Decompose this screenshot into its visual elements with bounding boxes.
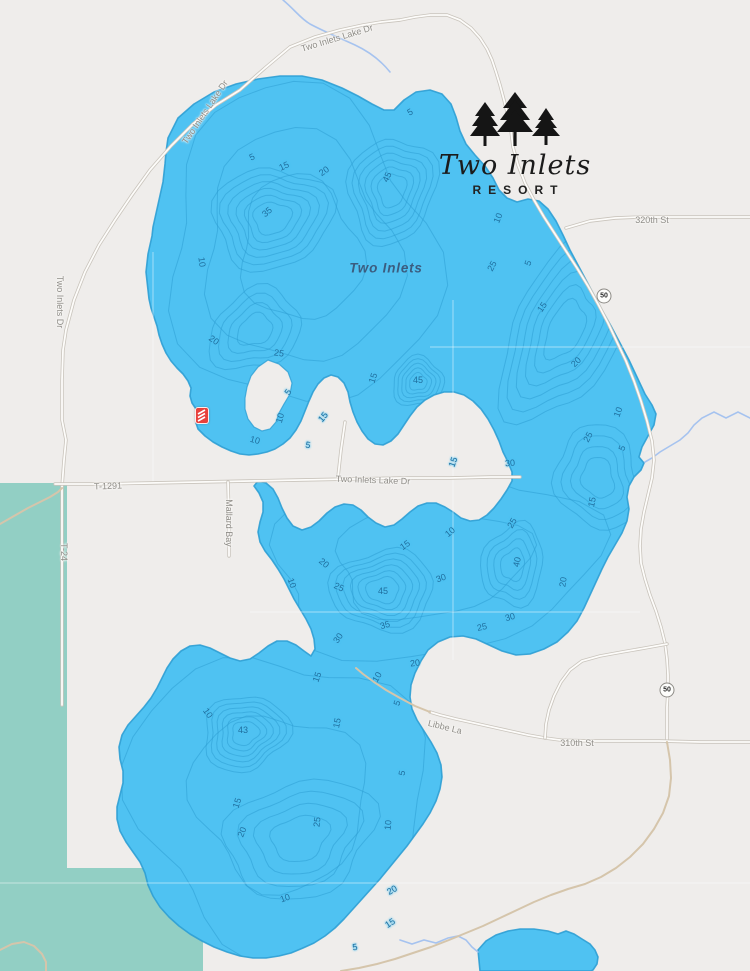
depth-value: 30 (505, 458, 516, 469)
road-label-text: Two Inlets Dr (55, 276, 65, 329)
depth-contour-label: 25 (476, 621, 488, 633)
road-label-text: 320th St (635, 215, 669, 225)
road-label: T-1291 (94, 481, 122, 492)
road-label: 310th St (560, 738, 594, 748)
road-label: 320th St (635, 215, 669, 225)
marker-glyph-icon (196, 408, 208, 423)
depth-value: 10 (196, 256, 207, 267)
road-label-text: 310th St (560, 738, 594, 748)
depth-value: 25 (273, 347, 284, 358)
depth-contour-label: 20 (409, 657, 420, 668)
depth-contour-label: 40 (511, 556, 523, 568)
highway-shield-50: 50 (660, 683, 675, 698)
depth-value: 25 (476, 621, 488, 633)
depth-contour-label: 10 (383, 820, 394, 831)
road-label: Two Inlets Dr (55, 276, 65, 329)
depth-value: 25 (312, 817, 323, 828)
depth-contour-label: 45 (378, 586, 388, 596)
depth-contour-label: 15 (586, 496, 598, 508)
highway-number: 50 (600, 293, 608, 300)
depth-contour-label: 43 (238, 725, 248, 735)
depth-contour-label: 30 (505, 458, 516, 469)
resort-map-marker[interactable] (195, 407, 209, 424)
road-label: T-24 (59, 543, 69, 561)
highway-number: 50 (663, 687, 671, 694)
highway-shield-50: 50 (597, 289, 612, 304)
depth-value: 10 (383, 820, 394, 831)
map-canvas: Two Inlets Two Inlets RESORT Two Inlets … (0, 0, 750, 971)
depth-value: 40 (511, 556, 523, 568)
depth-contour-label: 15 (331, 717, 343, 729)
lake-name-label: Two Inlets (349, 261, 423, 276)
road-label: Mallard Bay (224, 499, 234, 547)
road-label-text: T-24 (59, 543, 69, 561)
depth-contour-label: 10 (196, 256, 207, 267)
road-label-text: Mallard Bay (224, 499, 234, 547)
depth-contour-label: 45 (413, 375, 423, 385)
depth-value: 45 (378, 586, 388, 596)
resort-logo: Two Inlets RESORT (420, 92, 610, 197)
depth-value: 20 (409, 657, 420, 668)
depth-value: 15 (586, 496, 598, 508)
depth-value: 43 (238, 725, 248, 735)
logo-resort-text: RESORT (427, 183, 610, 197)
depth-value: 15 (331, 717, 343, 729)
depth-contour-label: 25 (312, 817, 323, 828)
road-label-text: T-1291 (94, 481, 122, 492)
depth-value: 45 (413, 375, 423, 385)
depth-value: 20 (557, 576, 568, 587)
pine-trees-icon (469, 92, 561, 150)
lake-water (117, 76, 656, 971)
depth-contour-label: 25 (273, 347, 284, 358)
depth-contour-label: 20 (557, 576, 568, 587)
logo-name-text: Two Inlets (420, 152, 610, 179)
